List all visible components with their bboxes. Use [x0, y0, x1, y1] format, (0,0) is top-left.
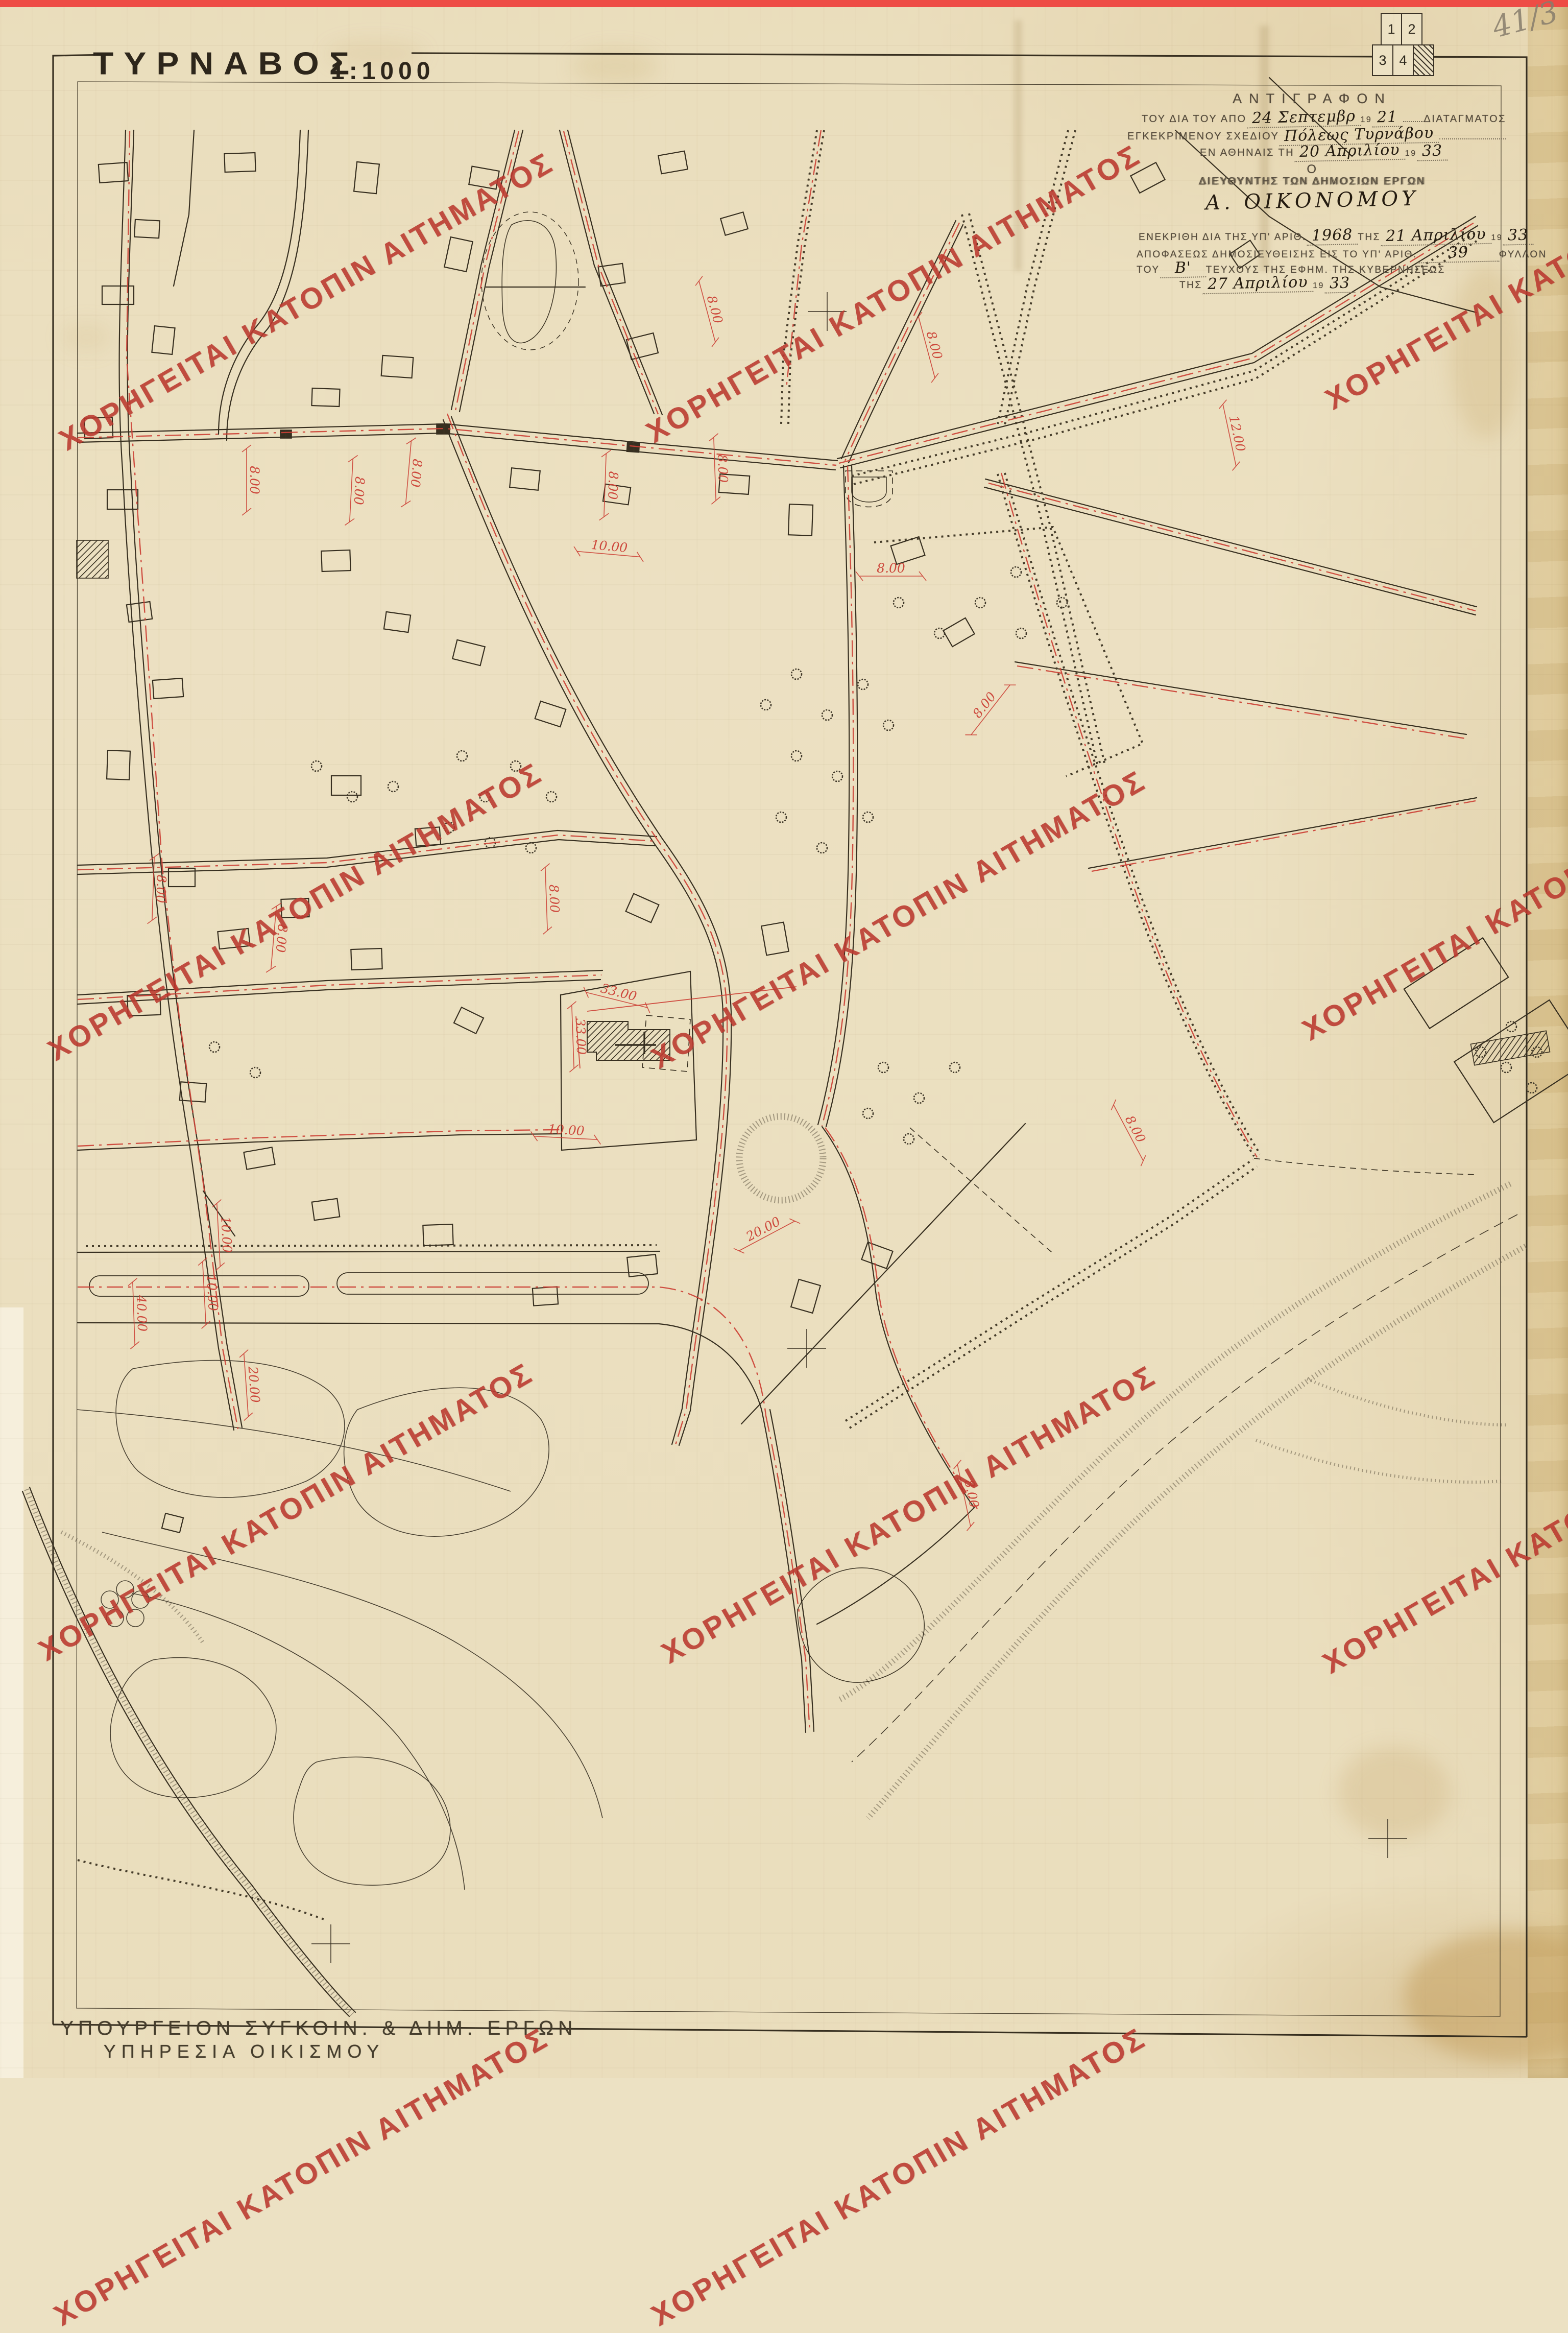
handwritten-date: 20 Απριλίου: [1294, 141, 1405, 162]
handwritten-year: 33: [1503, 226, 1534, 245]
svg-text:8.00: 8.00: [153, 874, 169, 903]
svg-text:8.00: 8.00: [715, 454, 731, 483]
printed-label: ΕΝΕΚΡΙΘΗ ΔΙΑ ΤΗΣ ΥΠ' ΑΡΙΘ.: [1139, 232, 1307, 243]
registration-crosses: [311, 292, 1407, 1963]
director-title-stamp: ΔΙΕΥΘΥΝΤΗΣ ΤΩΝ ΔΗΜΟΣΙΩΝ ΕΡΓΩΝ: [1199, 176, 1426, 187]
printed-label: ΕΓΚΕΚΡΙΜΕΝΟΥ ΣΧΕΔΙΟΥ: [1127, 131, 1279, 142]
river-and-embankment-texture: [27, 1116, 1526, 2014]
handwritten-year: 33: [1416, 141, 1448, 161]
svg-text:8.00: 8.00: [924, 329, 945, 361]
scanned-map-page: { "title": "ΤΥΡΝΑΒΟΣ", "scale": "1:1000"…: [0, 0, 1568, 2078]
index-cell-1: 1: [1381, 13, 1402, 45]
index-cell-3: 3: [1372, 44, 1393, 76]
tree-row-avenues: [78, 130, 1477, 1920]
town-plan-drawing: 8.008.008.008.0012.008.0010.008.008.008.…: [0, 0, 1568, 2078]
park-paths: [77, 1361, 602, 1890]
printed-year-prefix: 19: [1405, 149, 1417, 158]
ministry-name: ΥΠΟΥΡΓΕΙΟΝ ΣΥΓΚΟΙΝ. & ΔΗΜ. ΕΡΓΩΝ: [60, 2017, 428, 2040]
svg-text:8.00: 8.00: [546, 884, 562, 913]
copy-attestation-block: ΑΝΤΙΓΡΑΦΟΝ ΤΟΥ ΔΙΑ ΤΟΥ ΑΠΟ 24 Σεπτεμβρ 1…: [1118, 91, 1506, 213]
printed-label: ΦΥΛΛΟΝ: [1499, 249, 1547, 260]
index-cell-2: 2: [1401, 13, 1422, 45]
agency-stamp: ΥΠΟΥΡΓΕΙΟΝ ΣΥΓΚΟΙΝ. & ΔΗΜ. ΕΡΓΩΝ ΥΠΗΡΕΣΙ…: [60, 2017, 428, 2062]
svg-text:10.00: 10.00: [590, 537, 628, 555]
svg-text:33.00: 33.00: [573, 1018, 589, 1055]
svg-text:20.00: 20.00: [245, 1365, 262, 1403]
svg-text:20.00: 20.00: [743, 1214, 783, 1245]
printed-year-prefix: 19: [1491, 233, 1503, 243]
printed-label: ΤΗΣ: [1358, 232, 1381, 243]
map-title: ΤΥΡΝΑΒΟΣ: [93, 45, 359, 81]
printed-label: ΤΗΣ: [1179, 280, 1202, 291]
svg-text:40.00: 40.00: [134, 1294, 150, 1332]
approval-block: ΕΝΕΚΡΙΘΗ ΔΙΑ ΤΗΣ ΥΠ' ΑΡΙΘ. 1968 ΤΗΣ 21 Α…: [1118, 226, 1496, 298]
svg-text:8.00: 8.00: [877, 561, 905, 576]
handwritten-number: 1968: [1307, 226, 1358, 246]
printed-year-prefix: 19: [1313, 281, 1324, 291]
svg-text:8.00: 8.00: [351, 476, 368, 505]
svg-text:10.00: 10.00: [204, 1274, 221, 1312]
svg-text:10.00: 10.00: [218, 1216, 235, 1253]
index-cell-4: 4: [1392, 44, 1414, 76]
svg-text:8.00: 8.00: [605, 471, 621, 500]
dotted-leader: [1439, 130, 1506, 139]
svg-text:8.00: 8.00: [408, 458, 425, 488]
svg-text:8.00: 8.00: [247, 466, 262, 494]
map-scale: 1:1000: [331, 57, 435, 85]
printed-year-prefix: 19: [1361, 115, 1372, 125]
svg-text:10.00: 10.00: [547, 1122, 585, 1138]
printed-label: ΔΙΑΤΑΓΜΑΤΟΣ: [1424, 113, 1506, 125]
svg-text:8.00: 8.00: [704, 294, 726, 325]
buildings: [77, 151, 1568, 1533]
housing-service-name: ΥΠΗΡΕΣΙΑ ΟΙΚΙΣΜΟΥ: [60, 2041, 428, 2062]
handwritten-year: 33: [1324, 274, 1356, 293]
copy-heading: ΑΝΤΙΓΡΑΦΟΝ: [1233, 91, 1392, 107]
printed-label: ΤΟΥ ΔΙΑ ΤΟΥ ΑΠΟ: [1142, 113, 1247, 125]
article-o: Ο: [1307, 162, 1317, 177]
handwritten-date: 27 Απριλίου: [1202, 273, 1313, 295]
printed-label: ΕΝ ΑΘΗΝΑΙΣ ΤΗ: [1200, 147, 1294, 159]
index-cell-5-current-sheet: 5: [1413, 44, 1434, 76]
dotted-leader: [1403, 113, 1424, 122]
red-scan-edge-band: [0, 0, 1568, 7]
signature: Α. ΟΙΚΟΝΟΜΟΥ: [1200, 186, 1424, 215]
